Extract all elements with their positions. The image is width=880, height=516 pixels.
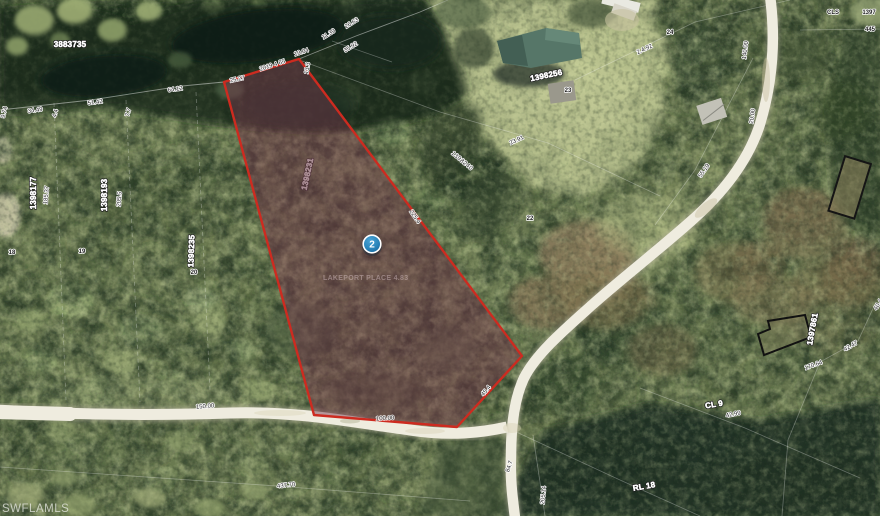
svg-text:1398193: 1398193 — [100, 178, 109, 211]
svg-text:24: 24 — [667, 30, 674, 36]
svg-text:2: 2 — [369, 240, 375, 251]
svg-text:1397: 1397 — [862, 10, 876, 16]
svg-text:1398177: 1398177 — [29, 176, 38, 209]
svg-text:3883735: 3883735 — [54, 40, 87, 49]
svg-text:SWFLAMLS: SWFLAMLS — [2, 503, 69, 515]
svg-text:18: 18 — [9, 250, 16, 256]
svg-text:CLS: CLS — [827, 10, 839, 16]
svg-text:23: 23 — [565, 88, 572, 94]
svg-text:LAKEPORT PLACE 4.83: LAKEPORT PLACE 4.83 — [323, 275, 408, 282]
svg-text:20: 20 — [191, 270, 198, 276]
svg-text:22: 22 — [527, 216, 534, 222]
svg-text:445: 445 — [865, 27, 876, 33]
svg-text:1398235: 1398235 — [186, 234, 196, 267]
svg-text:19: 19 — [79, 249, 86, 255]
